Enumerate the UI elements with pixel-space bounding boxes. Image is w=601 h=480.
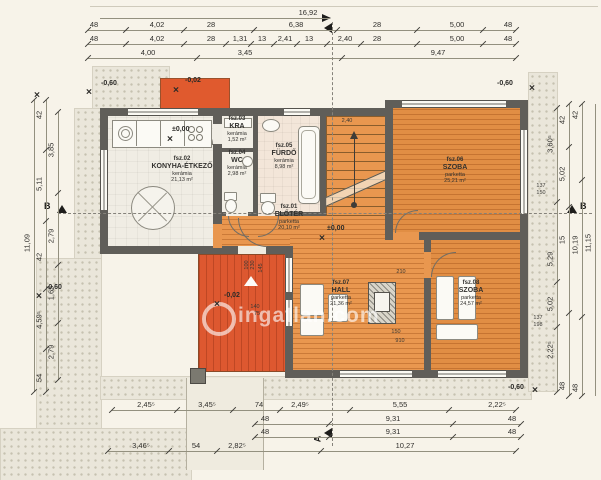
level-marker-icon: ✕ [167,135,174,144]
detail-label: 137 [536,183,545,189]
room-label-fsz-05: fsz.05FÜRDŐkerámia8,98 m² [272,143,297,171]
dim-label: 28 [207,34,215,43]
dim-tick [579,393,585,399]
dim-label: 6,38 [289,20,304,29]
dim-tick [43,389,49,395]
detail-label: 910 [395,338,404,344]
dim-label: 48 [508,427,516,436]
room-label-line: 1,52 m² [227,137,247,143]
dim-line [88,30,516,31]
dim-label: 28 [373,34,381,43]
detail-label: 145 [258,263,264,272]
dim-label: 48 [571,384,580,392]
room-label-line: KONYHA-ÉTKEZŐ [151,163,212,171]
detail-label: 230 [250,260,256,269]
dim-label: 48 [504,34,512,43]
dim-line [595,104,596,396]
room-label-line: fsz.04 [227,150,247,157]
dim-label: 9,31 [386,414,401,423]
room-label-fsz-04: fsz.04WCkerámia2,98 m² [227,150,247,178]
room-label-fsz-07: fsz.07HALLparketta21,36 m² [330,280,352,308]
detail-label: 75 [254,311,260,317]
dim-label: 5,11 [35,177,44,191]
dim-label: 48 [504,20,512,29]
dim-tick [513,55,519,61]
room-label-line: fsz.07 [330,280,352,287]
dim-label: 48 [90,20,98,29]
detail-label: 137 [533,315,542,321]
dim-tick [513,448,519,454]
room-label-line: SZOBA [459,287,484,295]
dim-label: 3,45⁵ [198,400,216,409]
dim-label: 42 [558,116,567,124]
room-label-line: fsz.08 [459,280,484,287]
room-label-line: 25,21 m² [443,178,468,184]
dim-label: 5,02 [546,297,555,312]
dim-label: 9,31 [386,427,401,436]
room-label-fsz-06: fsz.06SZOBAparketta25,21 m² [443,157,468,185]
dim-label: 4,02 [150,20,165,29]
dim-line [557,108,558,392]
dim-label: 3,46⁵ [132,441,150,450]
level-marker-icon: ✕ [529,84,536,93]
room-label-line: 21,13 m² [151,177,212,183]
dim-label: 10,27 [396,441,415,450]
dim-label: 11,15 [584,234,593,252]
room-label-fsz-03: fsz.03KRAkerámia1,52 m² [227,116,247,144]
dim-label: 28 [373,20,381,29]
level-label: ±0,00 [327,225,344,232]
dim-label: 5,00 [450,20,465,29]
dim-line [88,44,516,45]
dim-label: 1,31 [233,34,248,43]
dim-label: 2,22⁵ [488,400,506,409]
dim-label: 2,40 [338,34,353,43]
dim-label: 13 [258,34,266,43]
dim-label: 54 [35,374,44,382]
level-label: -0,60 [101,80,117,87]
dim-label: 74 [255,400,263,409]
room-label-line: fsz.06 [443,157,468,164]
room-label-line: ELŐTÉR [275,211,303,219]
dim-label: 42 [35,111,44,119]
dim-label: 10,19 [571,236,580,255]
room-label-line: KRA [227,123,247,131]
room-label-line: 2,98 m² [227,171,247,177]
dim-tick [513,41,519,47]
dim-label: 5,00 [450,34,465,43]
room-label-line: 24,57 m² [459,301,484,307]
room-label-fsz-08: fsz.08SZOBAparketta24,57 m² [459,280,484,308]
level-marker-icon: ✕ [319,234,326,243]
dim-label: 9,47 [431,48,446,57]
dim-label: 3,60⁵ [546,135,555,153]
dim-label: 48 [508,414,516,423]
dim-label: 2,49⁵ [291,400,309,409]
detail-label: 2,40 [342,118,353,124]
level-marker-icon: ✕ [532,386,539,395]
room-label-line: 20,10 m² [275,225,303,231]
annotation-layer: 16,92484,02286,38285,0048484,02281,31132… [0,0,601,480]
dim-line [255,424,521,425]
room-label-line: FÜRDŐ [272,150,297,158]
dim-tick [518,434,524,440]
dim-line [100,18,330,19]
dim-line [88,58,516,59]
dim-label: 5,29 [546,252,555,267]
room-label-line: fsz.01 [275,204,303,211]
level-label: -0,60 [497,80,513,87]
dim-label: 13 [305,34,313,43]
dim-tick [513,27,519,33]
dim-label: 15 [558,236,567,244]
dim-label: 5,02 [558,167,567,182]
level-label: -0,02 [224,292,240,299]
room-label-line: 8,98 m² [272,164,297,170]
dim-tick [566,393,572,399]
dim-label: 16,92 [299,8,318,17]
level-label: -0,02 [185,77,201,84]
dim-tick [55,377,61,383]
dim-line [112,410,516,411]
level-marker-icon: ✕ [86,88,93,97]
dim-label: 3,45 [238,48,253,57]
dim-label: 2,79 [47,345,56,360]
dim-label: 4,59⁵ [35,311,44,329]
dim-label: 2,82⁵ [228,441,246,450]
dim-label: 48 [558,382,567,390]
level-marker-icon: ✕ [34,91,41,100]
dim-tick [518,421,524,427]
dim-line [34,100,35,392]
room-label-fsz-02: fsz.02KONYHA-ÉTKEZŐkerámia21,13 m² [151,156,212,184]
room-label-line: 21,36 m² [330,301,352,307]
dim-label: 4,00 [141,48,156,57]
level-label: -0,60 [46,284,62,291]
dim-label: 3,85 [47,143,56,158]
dim-label: 11,09 [23,234,32,252]
floor-plan-canvas: A B B ingatlan.com 16,92484,02286,38285,… [0,0,601,480]
dim-label: 2,41 [278,34,293,43]
room-label-line: SZOBA [443,164,468,172]
dim-label: 48 [90,34,98,43]
room-label-line: fsz.03 [227,116,247,123]
dim-label: 2,79 [47,229,56,244]
dim-label: 2,45⁵ [137,400,155,409]
level-marker-icon: ✕ [214,300,221,309]
dim-label: 42 [571,111,580,119]
level-marker-icon: ✕ [173,86,180,95]
dim-label: 5,55 [393,400,408,409]
room-label-line: fsz.02 [151,156,212,163]
level-label: ±0,00 [172,126,189,133]
dim-line [58,112,59,380]
dim-tick [31,389,37,395]
level-marker-icon: ✕ [36,292,43,301]
level-label: -0,60 [508,384,524,391]
detail-label: 210 [396,269,405,275]
detail-label: 198 [533,322,542,328]
dim-label: 54 [192,441,200,450]
room-label-line: WC [227,157,247,165]
dim-label: 42 [35,253,44,261]
room-label-fsz-01: fsz.01ELŐTÉRparketta20,10 m² [275,204,303,232]
detail-label: 140 [250,304,259,310]
dim-label: 28 [207,20,215,29]
dim-label: 2,22⁵ [546,341,555,359]
detail-label: 150 [536,190,545,196]
dim-tick [513,407,519,413]
detail-label: 150 [391,329,400,335]
dim-label: 4,02 [150,34,165,43]
dim-label: 48 [261,414,269,423]
room-label-line: HALL [330,287,352,295]
dim-line [255,437,521,438]
room-label-line: fsz.05 [272,143,297,150]
dim-label: 48 [261,427,269,436]
